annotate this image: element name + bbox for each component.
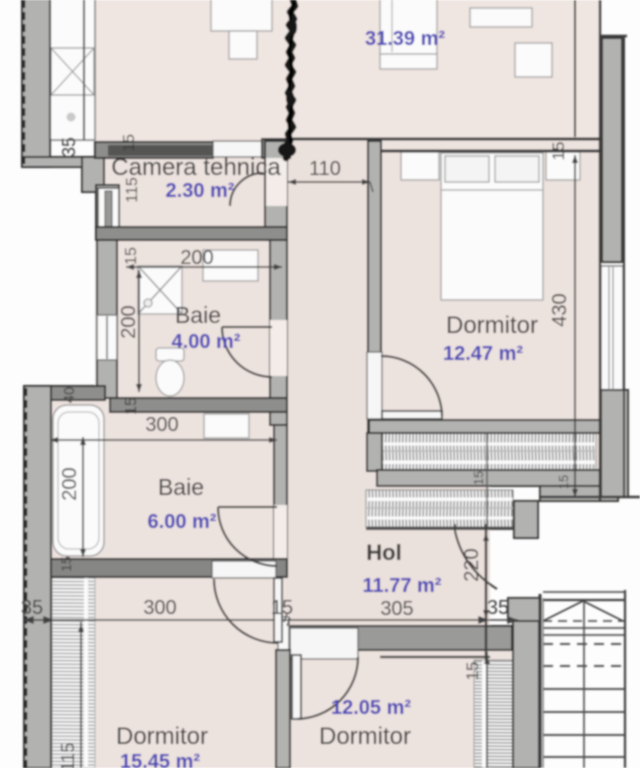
svg-text:35: 35: [21, 597, 43, 619]
svg-text:Baie: Baie: [158, 474, 204, 500]
svg-text:Dormitor: Dormitor: [446, 312, 538, 339]
svg-text:4.00 m²: 4.00 m²: [172, 331, 241, 353]
svg-text:Baie: Baie: [175, 302, 221, 328]
svg-text:40: 40: [61, 387, 78, 404]
svg-text:12.47 m²: 12.47 m²: [443, 343, 523, 365]
svg-text:15: 15: [121, 134, 138, 152]
svg-text:305: 305: [380, 598, 413, 620]
svg-text:35: 35: [59, 137, 79, 157]
svg-text:Hol: Hol: [366, 540, 401, 565]
svg-text:15: 15: [463, 662, 482, 681]
svg-text:15: 15: [58, 556, 74, 572]
svg-text:200: 200: [118, 305, 140, 338]
svg-text:31.39 m²: 31.39 m²: [365, 28, 445, 50]
svg-text:6.00 m²: 6.00 m²: [148, 511, 217, 533]
svg-text:430: 430: [549, 293, 571, 326]
svg-text:15: 15: [271, 597, 293, 619]
svg-text:200: 200: [59, 467, 81, 500]
svg-text:Camera tehnica: Camera tehnica: [111, 154, 281, 181]
svg-text:11.77 m²: 11.77 m²: [363, 575, 442, 597]
svg-text:15: 15: [471, 471, 486, 485]
svg-text:15: 15: [123, 247, 140, 265]
svg-text:220: 220: [461, 548, 483, 581]
svg-text:200: 200: [180, 247, 213, 269]
svg-text:12.05 m²: 12.05 m²: [331, 697, 411, 719]
svg-text:15: 15: [549, 142, 568, 161]
svg-text:300: 300: [143, 597, 176, 619]
svg-text:110: 110: [309, 158, 341, 180]
svg-text:Dormitor: Dormitor: [116, 723, 208, 750]
svg-text:35: 35: [487, 597, 509, 619]
svg-text:Dormitor: Dormitor: [319, 723, 411, 750]
svg-text:15.45 m²: 15.45 m²: [120, 751, 200, 768]
svg-text:300: 300: [145, 414, 178, 436]
svg-text:115: 115: [124, 177, 141, 203]
svg-text:15: 15: [556, 475, 571, 489]
svg-text:15: 15: [123, 397, 140, 415]
svg-text:2.30 m²: 2.30 m²: [166, 180, 235, 202]
svg-text:115: 115: [58, 743, 78, 768]
